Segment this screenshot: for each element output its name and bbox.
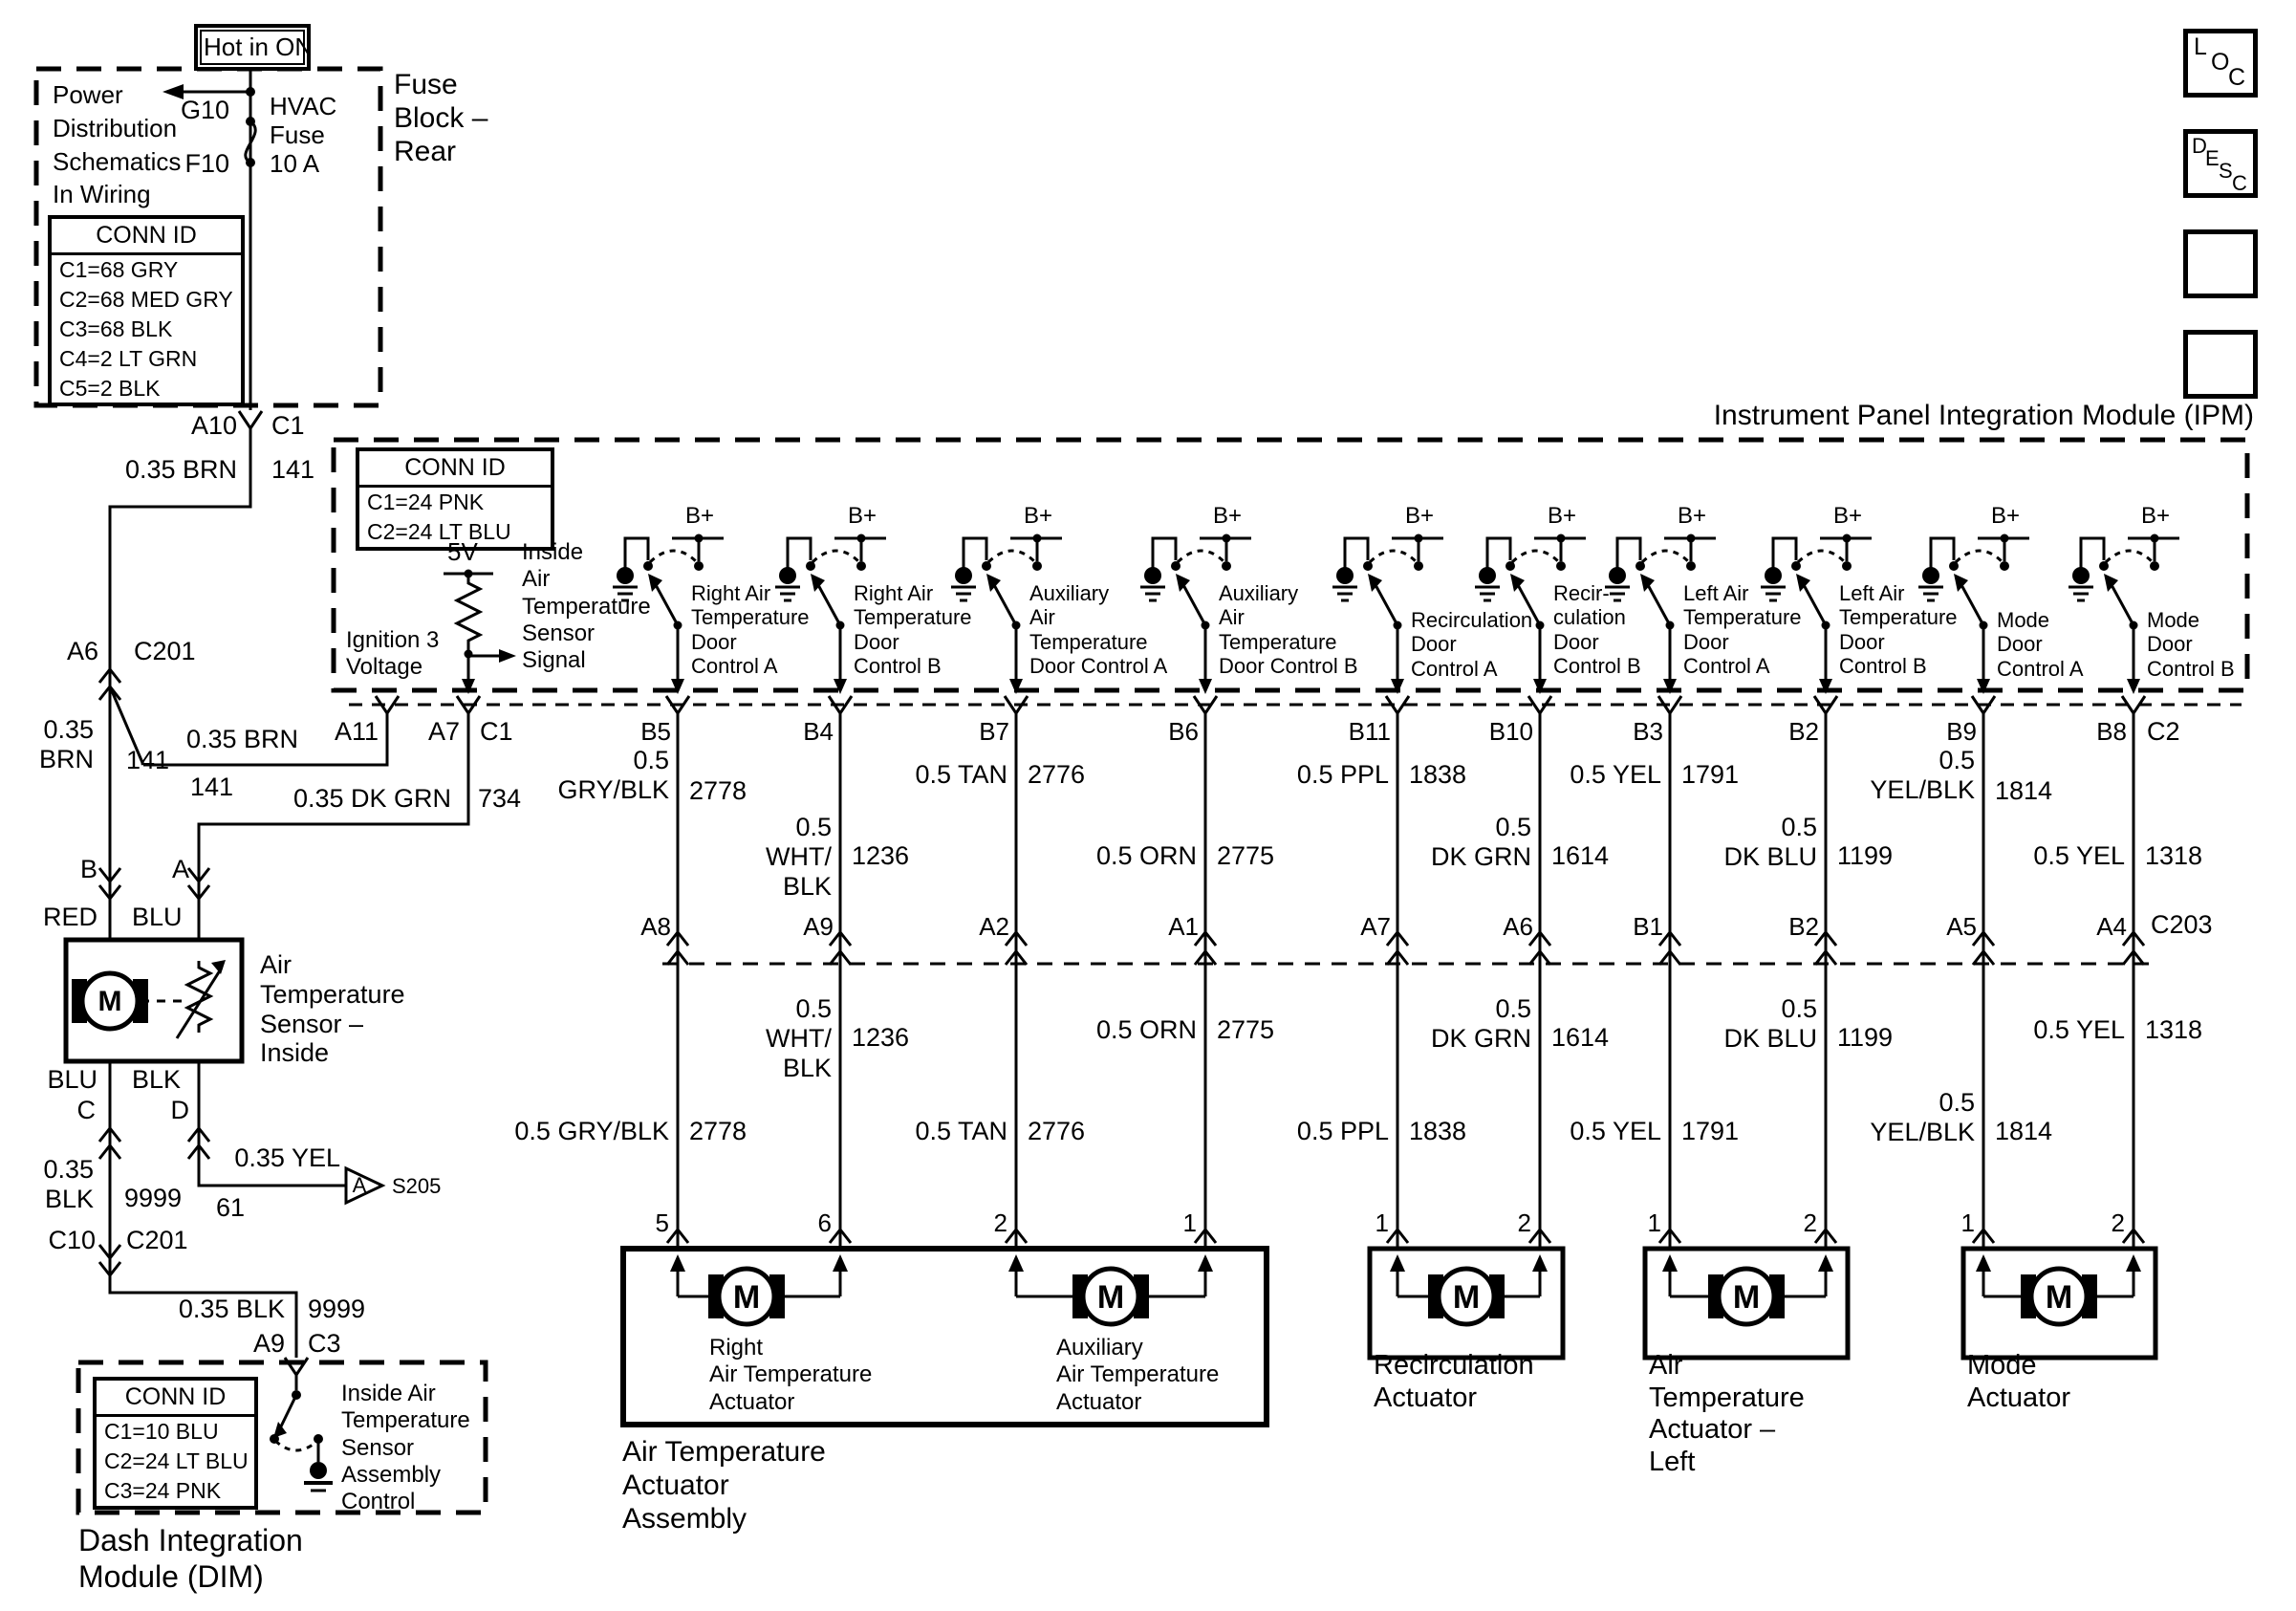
pin-b3: B3 [1633, 717, 1663, 746]
fuse-block-title: Fuse Block – Rear [394, 69, 487, 168]
ignition-3-voltage-label: Ignition 3 Voltage [346, 627, 439, 682]
circuit-number: 141 [271, 455, 314, 485]
circuit-number: 1814 [1995, 776, 2052, 806]
pin-a9: A9 [803, 912, 834, 941]
act-pin: 6 [818, 1208, 832, 1237]
pin-b4: B4 [803, 717, 834, 746]
circuit-number: 2776 [1028, 760, 1085, 790]
wire-spec: 0.5 WHT/ BLK [766, 994, 832, 1082]
wire-spec: 0.5 YEL/BLK [1870, 746, 1975, 805]
wire-spec: 0.5 YEL [2033, 841, 2125, 871]
circuit-number: 141 [190, 773, 233, 802]
conn-id-row: C3=68 BLK [52, 315, 241, 344]
conn-c201: C201 [134, 637, 196, 666]
next-button[interactable] [2183, 229, 2258, 298]
conn-c1: C1 [271, 411, 305, 441]
circuit-number: 1236 [852, 841, 909, 871]
wire-spec: 0.5 DK GRN [1431, 994, 1531, 1054]
wire-spec: 0.35 BRN [125, 455, 237, 485]
circuit-number: 9999 [308, 1295, 365, 1324]
conn-c3: C3 [308, 1329, 341, 1359]
wire-spec: 0.5 YEL [1570, 760, 1661, 790]
control-label: Mode Door Control A [1997, 608, 2084, 681]
pin-a1: A1 [1168, 912, 1199, 941]
bplus-label: B+ [1024, 503, 1052, 530]
circuit-number: 1791 [1681, 760, 1739, 790]
pin-a6: A6 [67, 637, 98, 666]
circuit-number: 1791 [1681, 1117, 1739, 1146]
splice-s205: S205 [392, 1174, 441, 1198]
circuit-number: 2778 [689, 776, 747, 806]
right-air-temp-actuator-label: Right Air Temperature Actuator [709, 1335, 872, 1416]
motor-m-label: M [1725, 1279, 1767, 1317]
pin-a7: A7 [428, 717, 460, 747]
fuse-pin-f10: F10 [184, 149, 229, 179]
wire-spec: 0.35 BLK [179, 1295, 285, 1324]
wire-spec: 0.5 GRY/BLK [514, 1117, 669, 1146]
motor-m-label: M [1445, 1279, 1487, 1317]
dim-switch-label: Inside Air Temperature Sensor Assembly C… [341, 1381, 470, 1516]
conn-id-row: C3=24 PNK [97, 1476, 254, 1506]
circuit-number: 61 [216, 1193, 245, 1223]
circuit-number: 1199 [1837, 841, 1893, 871]
wire-color-blk: BLK [132, 1065, 181, 1095]
conn-id-header: CONN ID [97, 1381, 254, 1417]
pin-a: A [172, 855, 189, 884]
conn-c2-ipm: C2 [2147, 717, 2180, 747]
control-label: Mode Door Control B [2147, 608, 2235, 681]
bplus-label: B+ [848, 503, 877, 530]
motor-m-label: M [2038, 1279, 2080, 1317]
back-button[interactable] [2183, 330, 2258, 399]
circuit-number: 1318 [2145, 1015, 2202, 1045]
ipm-title: Instrument Panel Integration Module (IPM… [1714, 400, 2254, 433]
fuse-pin-g10: G10 [181, 96, 229, 125]
pin-b: B [80, 855, 97, 884]
control-label: Auxiliary Air Temperature Door Control B [1219, 581, 1358, 678]
wire-spec: 0.35 BRN [186, 725, 298, 754]
wire-spec: 0.5 PPL [1297, 1117, 1389, 1146]
pin-a4: A4 [2096, 912, 2127, 941]
pin-b11: B11 [1349, 717, 1391, 746]
pin-a6: A6 [1503, 912, 1533, 941]
wire-spec: 0.5 YEL/BLK [1870, 1088, 1975, 1147]
bplus-label: B+ [2141, 503, 2170, 530]
mode-actuator-label: Mode Actuator [1967, 1350, 2070, 1414]
circuit-number: 2775 [1217, 1015, 1274, 1045]
control-label: Left Air Temperature Door Control A [1683, 581, 1802, 678]
loc-letter: L [2194, 33, 2207, 61]
circuit-number: 1614 [1551, 841, 1609, 871]
wire-spec: 0.5 YEL [1570, 1117, 1661, 1146]
pin-b10: B10 [1489, 717, 1533, 746]
wire-spec: 0.35 DK GRN [293, 784, 451, 814]
control-label: Auxiliary Air Temperature Door Control A [1029, 581, 1167, 678]
wire-spec: 0.5 DK BLU [1723, 994, 1817, 1054]
motor-m-label: M [726, 1279, 768, 1317]
motor-m-label: M [89, 986, 131, 1018]
hot-in-on-box: Hot in ON [194, 24, 311, 71]
pin-a7: A7 [1360, 912, 1391, 941]
conn-c203: C203 [2151, 910, 2213, 940]
bplus-label: B+ [1405, 503, 1434, 530]
pin-b7: B7 [979, 717, 1009, 746]
pin-b9: B9 [1946, 717, 1977, 746]
desc-button[interactable]: D E S C [2183, 129, 2258, 198]
five-volt-label: 5V [447, 537, 478, 566]
hot-in-on-label: Hot in ON [200, 30, 305, 65]
wire-color-blu: BLU [47, 1065, 97, 1095]
loc-button[interactable]: L O C [2183, 29, 2258, 98]
pin-b8: B8 [2096, 717, 2127, 746]
wire-spec: 0.5 YEL [2033, 1015, 2125, 1045]
wire-spec: 0.5 DK BLU [1723, 813, 1817, 872]
conn-id-row: C1=24 PNK [359, 488, 551, 517]
bplus-label: B+ [1678, 503, 1706, 530]
circuit-number: 1199 [1837, 1023, 1893, 1053]
act-pin: 2 [1804, 1208, 1817, 1237]
desc-letter: S [2219, 159, 2233, 184]
fuse-conn-id-box: CONN ID C1=68 GRY C2=68 MED GRY C3=68 BL… [48, 215, 245, 406]
left-air-temp-actuator-label: Air Temperature Actuator – Left [1649, 1350, 1805, 1479]
sensor-title: Air Temperature Sensor – Inside [260, 950, 405, 1068]
ipm-conn-id-box: CONN ID C1=24 PNK C2=24 LT BLU [356, 447, 554, 551]
bplus-label: B+ [685, 503, 714, 530]
wire-spec: 0.5 TAN [915, 1117, 1007, 1146]
wire-spec: 0.5 PPL [1297, 760, 1389, 790]
circuit-number: 1814 [1995, 1117, 2052, 1146]
wire-color-blu: BLU [132, 903, 183, 932]
hvac-fuse-label: HVAC Fuse 10 A [270, 92, 336, 178]
pin-c: C [77, 1096, 97, 1125]
pin-a9: A9 [253, 1329, 285, 1359]
control-label: Left Air Temperature Door Control B [1839, 581, 1958, 678]
wire-spec: 0.5 GRY/BLK [557, 746, 669, 805]
pin-c10: C10 [48, 1226, 96, 1255]
desc-letter: E [2205, 146, 2220, 171]
control-label: Recirculation Door Control A [1411, 608, 1532, 681]
circuit-number: 141 [126, 746, 169, 775]
circuit-number: 734 [478, 784, 521, 814]
conn-id-row: C2=68 MED GRY [52, 285, 241, 315]
pin-b2: B2 [1788, 717, 1819, 746]
wire-color-red: RED [43, 903, 97, 932]
wire-spec: 0.5 DK GRN [1431, 813, 1531, 872]
pin-d: D [171, 1096, 190, 1125]
dim-title: Dash Integration Module (DIM) [78, 1522, 303, 1596]
act-pin: 5 [656, 1208, 669, 1237]
wire-spec: 0.35 BRN [39, 715, 94, 774]
pin-b1: B1 [1633, 912, 1663, 941]
wire-spec: 0.5 WHT/ BLK [766, 813, 832, 901]
act-pin: 2 [994, 1208, 1007, 1237]
loc-letter: C [2228, 64, 2245, 92]
act-pin: 2 [1518, 1208, 1531, 1237]
act-pin: 1 [1183, 1208, 1197, 1237]
dim-conn-id-box: CONN ID C1=10 BLU C2=24 LT BLU C3=24 PNK [93, 1377, 258, 1510]
pin-a10: A10 [191, 411, 237, 441]
wire-spec: 0.35 YEL [234, 1143, 340, 1173]
circuit-number: 2776 [1028, 1117, 1085, 1146]
circuit-number: 1838 [1409, 760, 1466, 790]
bplus-label: B+ [1833, 503, 1862, 530]
wire-spec: 0.35 BLK [43, 1155, 94, 1214]
circuit-number: 1614 [1551, 1023, 1609, 1053]
conn-c1-ipm: C1 [480, 717, 513, 747]
bplus-label: B+ [1548, 503, 1576, 530]
recirculation-actuator-label: Recirculation Actuator [1374, 1350, 1534, 1414]
desc-letter: C [2232, 171, 2247, 196]
conn-id-row: C1=68 GRY [52, 255, 241, 285]
act-pin: 1 [1648, 1208, 1661, 1237]
wire-spec: 0.5 ORN [1096, 841, 1197, 871]
circuit-number: 1838 [1409, 1117, 1466, 1146]
circuit-number: 2775 [1217, 841, 1274, 871]
pin-a2: A2 [979, 912, 1009, 941]
circuit-number: 2778 [689, 1117, 747, 1146]
control-label: Right Air Temperature Door Control B [854, 581, 972, 678]
wire-spec: 0.5 ORN [1096, 1015, 1197, 1045]
assembly-label: Air Temperature Actuator Assembly [622, 1436, 826, 1535]
conn-id-header: CONN ID [52, 219, 241, 255]
conn-id-row: C5=2 BLK [52, 374, 241, 403]
circuit-number: 1318 [2145, 841, 2202, 871]
conn-id-row: C1=10 BLU [97, 1417, 254, 1447]
pin-a8: A8 [640, 912, 671, 941]
control-label: Recir- culation Door Control B [1553, 581, 1641, 678]
sensor-signal-label: Inside Air Temperature Sensor Signal [522, 539, 651, 675]
wiring-diagram-page: Hot in ON Fuse Block – Rear Power Distri… [0, 0, 2296, 1611]
wire-spec: 0.5 TAN [915, 760, 1007, 790]
aux-air-temp-actuator-label: Auxiliary Air Temperature Actuator [1056, 1335, 1219, 1416]
bplus-label: B+ [1991, 503, 2020, 530]
conn-c201: C201 [126, 1226, 188, 1255]
conn-id-row: C2=24 LT BLU [97, 1447, 254, 1476]
pin-a5: A5 [1946, 912, 1977, 941]
conn-id-header: CONN ID [359, 451, 551, 488]
splice-a-label: A [344, 1173, 375, 1197]
act-pin: 2 [2112, 1208, 2125, 1237]
conn-id-row: C4=2 LT GRN [52, 344, 241, 374]
act-pin: 1 [1961, 1208, 1975, 1237]
pin-a11: A11 [335, 717, 379, 747]
circuit-number: 1236 [852, 1023, 909, 1053]
control-label: Right Air Temperature Door Control A [691, 581, 810, 678]
bplus-label: B+ [1213, 503, 1242, 530]
pin-b5: B5 [640, 717, 671, 746]
loc-letter: O [2211, 49, 2229, 76]
pin-b6: B6 [1168, 717, 1199, 746]
pin-b2: B2 [1788, 912, 1819, 941]
circuit-number: 9999 [124, 1184, 182, 1213]
act-pin: 1 [1375, 1208, 1389, 1237]
motor-m-label: M [1090, 1279, 1132, 1317]
